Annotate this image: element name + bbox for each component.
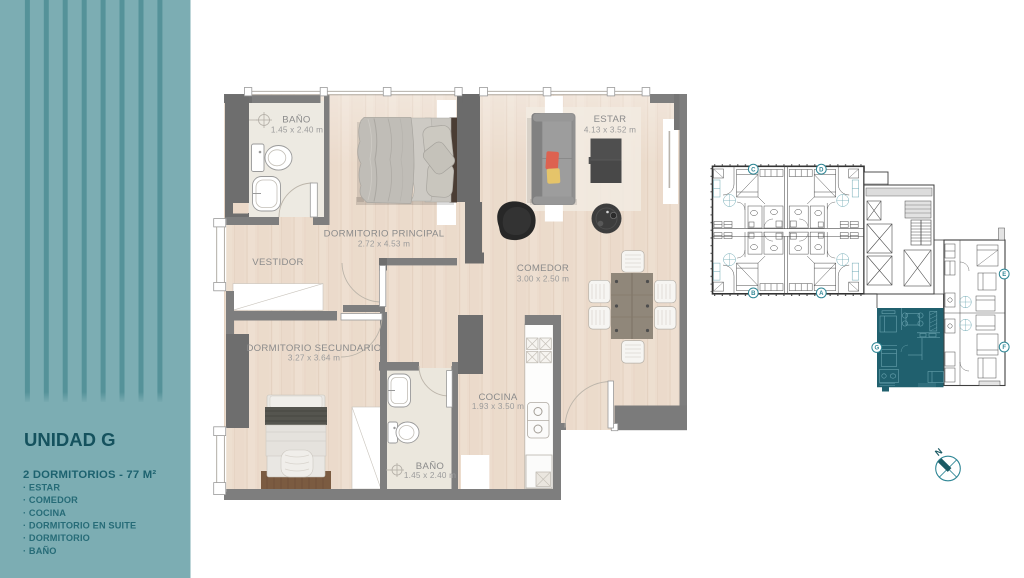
svg-text:· DORMITORIO: · DORMITORIO (23, 533, 90, 543)
svg-text:G: G (874, 346, 879, 352)
svg-text:F: F (1002, 345, 1006, 351)
svg-text:COMEDOR: COMEDOR (517, 263, 569, 274)
svg-text:UNIDAD G: UNIDAD G (24, 429, 115, 450)
svg-text:· DORMITORIO EN SUITE: · DORMITORIO EN SUITE (23, 521, 136, 531)
svg-text:1.45 x 2.40 m: 1.45 x 2.40 m (271, 126, 323, 135)
svg-text:C: C (751, 167, 756, 173)
svg-text:· BAÑO: · BAÑO (23, 546, 57, 556)
svg-text:A: A (819, 291, 824, 297)
svg-text:· COMEDOR: · COMEDOR (23, 495, 78, 505)
svg-text:· ESTAR: · ESTAR (23, 482, 60, 492)
svg-text:DORMITORIO PRINCIPAL: DORMITORIO PRINCIPAL (324, 228, 445, 239)
svg-text:4.13 x 3.52 m: 4.13 x 3.52 m (584, 126, 636, 135)
svg-text:2.72 x 4.53 m: 2.72 x 4.53 m (358, 239, 410, 248)
svg-text:1.45 x 2.40 m: 1.45 x 2.40 m (404, 471, 456, 480)
svg-text:D: D (819, 167, 824, 173)
svg-text:N: N (933, 446, 944, 458)
svg-text:DORMITORIO SECUNDARIO: DORMITORIO SECUNDARIO (246, 343, 381, 354)
svg-text:E: E (1002, 272, 1006, 278)
svg-text:3.27 x 3.64 m: 3.27 x 3.64 m (288, 354, 340, 363)
svg-text:3.00 x 2.50 m: 3.00 x 2.50 m (517, 275, 569, 284)
svg-text:· COCINA: · COCINA (23, 508, 66, 518)
svg-text:VESTIDOR: VESTIDOR (252, 257, 303, 268)
svg-text:ESTAR: ESTAR (594, 114, 627, 125)
svg-text:1.93 x 3.50 m: 1.93 x 3.50 m (472, 402, 524, 411)
svg-text:BAÑO: BAÑO (282, 114, 310, 125)
svg-text:B: B (751, 291, 756, 297)
svg-text:2 DORMITORIOS - 77 M²: 2 DORMITORIOS - 77 M² (23, 469, 156, 481)
